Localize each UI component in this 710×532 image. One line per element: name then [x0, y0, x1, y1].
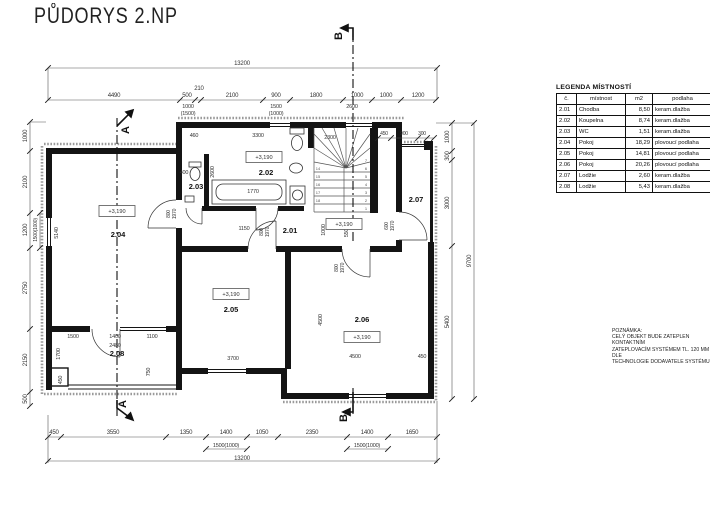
sink-icon [290, 163, 303, 173]
section-letter-a-bottom: A [117, 400, 129, 408]
washer-drum-icon [293, 190, 303, 200]
note-line: TECHNOLOGIE DODAVATELE SYSTÉMU [612, 359, 710, 365]
dim-label: 1000 [351, 93, 364, 99]
floor-plan-drawing: 1320044905002102100900180010001000120010… [0, 0, 710, 532]
room-label-2.04: 2.04 [111, 230, 126, 239]
dim-label: 1400 [220, 430, 233, 436]
tread-number: 3 [365, 190, 368, 195]
legend-cell: Koupelna [577, 116, 626, 127]
note-line: ZATEPLOVACÍM SYSTÉMEM TL. 120 MM DLE [612, 347, 710, 359]
dim-label: 2600 [210, 166, 216, 178]
dim-label: 1150 [238, 226, 249, 232]
dim-label: 4500 [318, 314, 324, 326]
dim-label: 1000 [445, 130, 451, 143]
legend-cell: Pokoj [577, 160, 626, 171]
dim-label: 1000 [23, 129, 29, 142]
legend-cell: 2.05 [557, 149, 577, 160]
dim-label: 450 [418, 354, 427, 360]
legend-row: 2.07Lodžie2,60keram.dlažba [557, 171, 710, 182]
legend-cell: 18,29 [626, 138, 653, 149]
legend-cell: keram.dlažba [653, 182, 710, 193]
legend-cell: keram.dlažba [653, 127, 710, 138]
dim-label: 1500 [270, 104, 282, 110]
dim-label: 2300 [324, 135, 336, 141]
section-letter-a-top: A [120, 126, 132, 134]
tread-number: 14 [316, 166, 321, 171]
stair-tread-numbers: 12345671415161718 [316, 158, 368, 211]
dim-label: 500 [23, 393, 29, 403]
room-legend: LEGENDA MÍSTNOSTÍ č.místnostm2podlaha2.0… [556, 84, 708, 193]
dim-label: 460 [190, 133, 199, 139]
dim-label: 2150 [23, 353, 29, 366]
dim-label: 1500(1000) [354, 443, 381, 449]
floor-plan-page: PŮDORYS 2.NP [0, 0, 710, 532]
dim-label: 1500 [67, 334, 79, 340]
dim-label: 13200 [234, 456, 251, 462]
dim-label: 1100 [146, 334, 157, 340]
legend-cell: 5,43 [626, 182, 653, 193]
legend-cell: 2,60 [626, 171, 653, 182]
dim-label: 1700 [56, 348, 62, 360]
tread-number: 7 [365, 158, 368, 163]
legend-header-cell: m2 [626, 94, 653, 105]
room-label-2.01: 2.01 [283, 226, 298, 235]
room-label-2.02: 2.02 [259, 168, 274, 177]
level-label: +3,190 [335, 222, 352, 228]
room-label-2.05: 2.05 [224, 305, 239, 314]
dim-label: (1000) [269, 111, 284, 117]
tread-number: 1 [365, 206, 368, 211]
room-label-2.07: 2.07 [409, 195, 424, 204]
tread-number: 17 [316, 190, 321, 195]
legend-row: 2.02Koupelna8,74keram.dlažba [557, 116, 710, 127]
dim-label: 1350 [180, 430, 193, 436]
legend-cell: 2.01 [557, 105, 577, 116]
wc-toilet-tank-icon [189, 162, 201, 167]
dim-label: 2100 [23, 175, 29, 188]
dim-label: 900 [271, 93, 281, 99]
note-line: CELÝ OBJEKT BUDE ZATEPLEN KONTAKTNÍM [612, 334, 710, 346]
dim-label: 1500(1000) [213, 443, 240, 449]
dim-label: 2100 [226, 93, 239, 99]
section-letters: AABB [117, 32, 350, 422]
legend-row: 2.03WC1,51keram.dlažba [557, 127, 710, 138]
dim-label: 1970 [340, 262, 346, 273]
dim-label: 3550 [107, 430, 120, 436]
dim-label: 2600 [346, 104, 358, 110]
toilet-icon [292, 136, 303, 151]
legend-cell: 2.08 [557, 182, 577, 193]
legend-cell: 14,81 [626, 149, 653, 160]
dim-label: 3300 [252, 133, 264, 139]
legend-cell: 2.02 [557, 116, 577, 127]
fixtures [185, 128, 305, 204]
note-lines: CELÝ OBJEKT BUDE ZATEPLEN KONTAKTNÍMZATE… [612, 334, 710, 365]
dim-label: 500 [182, 93, 192, 99]
dim-label: 1500(1000) [33, 218, 39, 242]
legend-row: 2.05Pokoj14,81plovoucí podlaha [557, 149, 710, 160]
dim-label: 5400 [445, 315, 451, 328]
legend-cell: keram.dlažba [653, 116, 710, 127]
legend-cell: plovoucí podlaha [653, 138, 710, 149]
legend-cell: 20,26 [626, 160, 653, 171]
dim-label: 900 [400, 131, 408, 137]
legend-cell: 8,74 [626, 116, 653, 127]
staircase [314, 128, 370, 212]
dim-label: 1770 [247, 189, 259, 195]
dim-label: 400 [180, 170, 189, 176]
wc-sink-icon [185, 196, 194, 202]
legend-cell: 8,50 [626, 105, 653, 116]
legend-cell: keram.dlažba [653, 105, 710, 116]
legend-cell: Lodžie [577, 182, 626, 193]
dim-label: 4500 [349, 354, 361, 360]
tread-number: 18 [316, 198, 321, 203]
legend-table: č.místnostm2podlaha2.01Chodba8,50keram.d… [556, 93, 710, 193]
wc-toilet-icon [190, 168, 200, 181]
dim-label: 450 [380, 131, 388, 137]
legend-cell: WC [577, 127, 626, 138]
tread-number: 15 [316, 174, 321, 179]
legend-cell: Chodba [577, 105, 626, 116]
toilet-tank-icon [290, 128, 304, 134]
tread-number: 6 [365, 166, 368, 171]
dim-label: 2350 [306, 430, 319, 436]
level-label: +3,190 [255, 155, 272, 161]
level-label: +3,190 [353, 335, 370, 341]
legend-cell: 2.07 [557, 171, 577, 182]
legend-cell: 2.06 [557, 160, 577, 171]
room-label-2.06: 2.06 [355, 315, 370, 324]
legend-cell: 2.04 [557, 138, 577, 149]
dim-label: 1200 [23, 223, 29, 236]
legend-row: 2.06Pokoj20,26plovoucí podlaha [557, 160, 710, 171]
legend-title: LEGENDA MÍSTNOSTÍ [556, 84, 708, 91]
dim-label: 210 [194, 86, 204, 92]
dim-label: 300 [418, 131, 426, 137]
dim-label: 300 [445, 150, 451, 160]
legend-header-cell: místnost [577, 94, 626, 105]
dim-label: 1970 [172, 208, 178, 219]
legend-cell: Pokoj [577, 149, 626, 160]
legend-row: 2.08Lodžie5,43keram.dlažba [557, 182, 710, 193]
dim-label: 9700 [467, 254, 473, 267]
note-block: POZNÁMKA: CELÝ OBJEKT BUDE ZATEPLEN KONT… [612, 328, 710, 365]
dim-label: 750 [146, 368, 152, 377]
room-label-2.03: 2.03 [189, 182, 204, 191]
tread-number: 4 [365, 182, 368, 187]
dim-label: 450 [49, 430, 59, 436]
dim-label: 3000 [445, 196, 451, 209]
dim-label: 13200 [234, 61, 251, 67]
tread-number: 2 [365, 198, 368, 203]
dim-label: 1800 [310, 93, 323, 99]
dim-label: 1970 [390, 220, 396, 231]
legend-cell: Pokoj [577, 138, 626, 149]
dim-label: 450 [58, 376, 64, 385]
section-letter-b-top: B [333, 32, 345, 40]
dim-label: 1200 [412, 93, 425, 99]
dim-label: 4490 [108, 93, 121, 99]
legend-header-row: č.místnostm2podlaha [557, 94, 710, 105]
legend-cell: keram.dlažba [653, 171, 710, 182]
legend-cell: plovoucí podlaha [653, 160, 710, 171]
legend-cell: plovoucí podlaha [653, 149, 710, 160]
legend-header-cell: č. [557, 94, 577, 105]
dim-label: 1000 [380, 93, 393, 99]
dim-label: 5140 [54, 227, 60, 239]
dim-label: 3700 [227, 356, 239, 362]
legend-row: 2.01Chodba8,50keram.dlažba [557, 105, 710, 116]
dim-label: 1650 [406, 430, 419, 436]
legend-header-cell: podlaha [653, 94, 710, 105]
walls [46, 122, 434, 399]
legend-cell: Lodžie [577, 171, 626, 182]
dim-label: 1970 [265, 226, 271, 237]
dim-label: 2750 [23, 281, 29, 294]
dim-label: (1500) [181, 111, 196, 117]
dim-label: 1050 [256, 430, 269, 436]
legend-cell: 1,51 [626, 127, 653, 138]
legend-cell: 2.03 [557, 127, 577, 138]
legend-row: 2.04Pokoj18,29plovoucí podlaha [557, 138, 710, 149]
room-label-2.08: 2.08 [110, 349, 125, 358]
tread-number: 16 [316, 182, 321, 187]
level-label: +3,190 [108, 209, 125, 215]
level-label: +3,190 [222, 292, 239, 298]
dim-label: 1400 [361, 430, 374, 436]
section-letter-b-bottom: B [338, 414, 350, 422]
dim-label: 1000 [182, 104, 194, 110]
dim-label: 1400 [109, 334, 121, 340]
tread-number: 5 [365, 174, 368, 179]
